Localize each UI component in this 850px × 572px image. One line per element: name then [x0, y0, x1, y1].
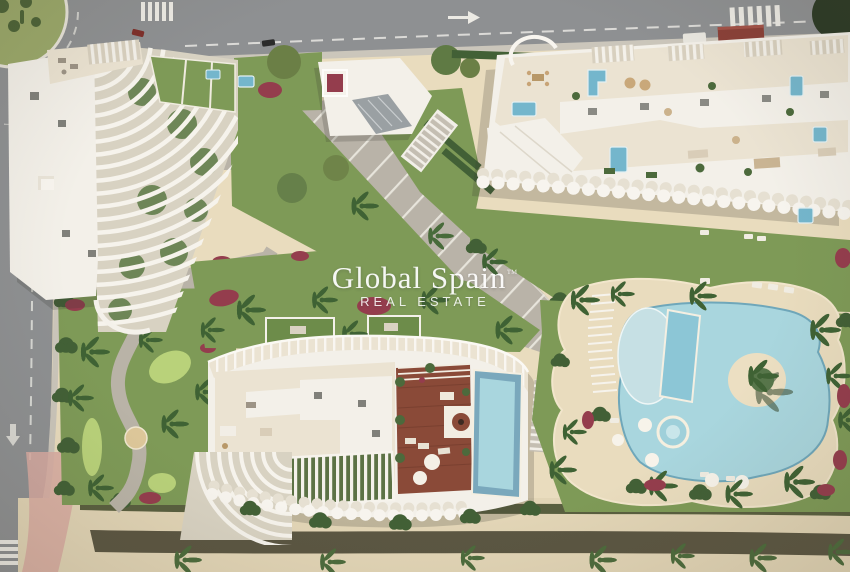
flowers-1	[258, 82, 282, 98]
garden-pool-2	[798, 208, 813, 223]
tree-3	[277, 173, 307, 203]
roof-patio-flowers	[327, 74, 343, 92]
building-a-roofbox	[38, 176, 54, 190]
building-a-mass	[8, 50, 98, 300]
lap-pool	[660, 310, 700, 402]
cabana-table-2	[384, 323, 398, 331]
putting-green-3	[148, 473, 176, 493]
tree-2	[323, 155, 349, 181]
building-c-pool	[472, 370, 522, 498]
tree-4	[431, 45, 461, 75]
tree-1	[267, 45, 301, 79]
deck-flower-pot	[419, 377, 425, 383]
development-scene	[0, 0, 850, 572]
building-top-right	[472, 32, 850, 226]
building-c-louvers	[282, 452, 394, 506]
aerial-render: Global Spain™ REAL ESTATE	[0, 0, 850, 572]
ne-garden-pool	[206, 70, 220, 79]
jacuzzi	[658, 417, 688, 447]
tree-5	[460, 58, 480, 78]
sand-circle	[125, 427, 147, 449]
lagoon-area	[532, 278, 850, 512]
building-bottom	[180, 336, 554, 547]
garden-pool-1	[238, 76, 254, 87]
putting-green-1	[82, 418, 102, 476]
cabana-table-1	[290, 326, 306, 334]
